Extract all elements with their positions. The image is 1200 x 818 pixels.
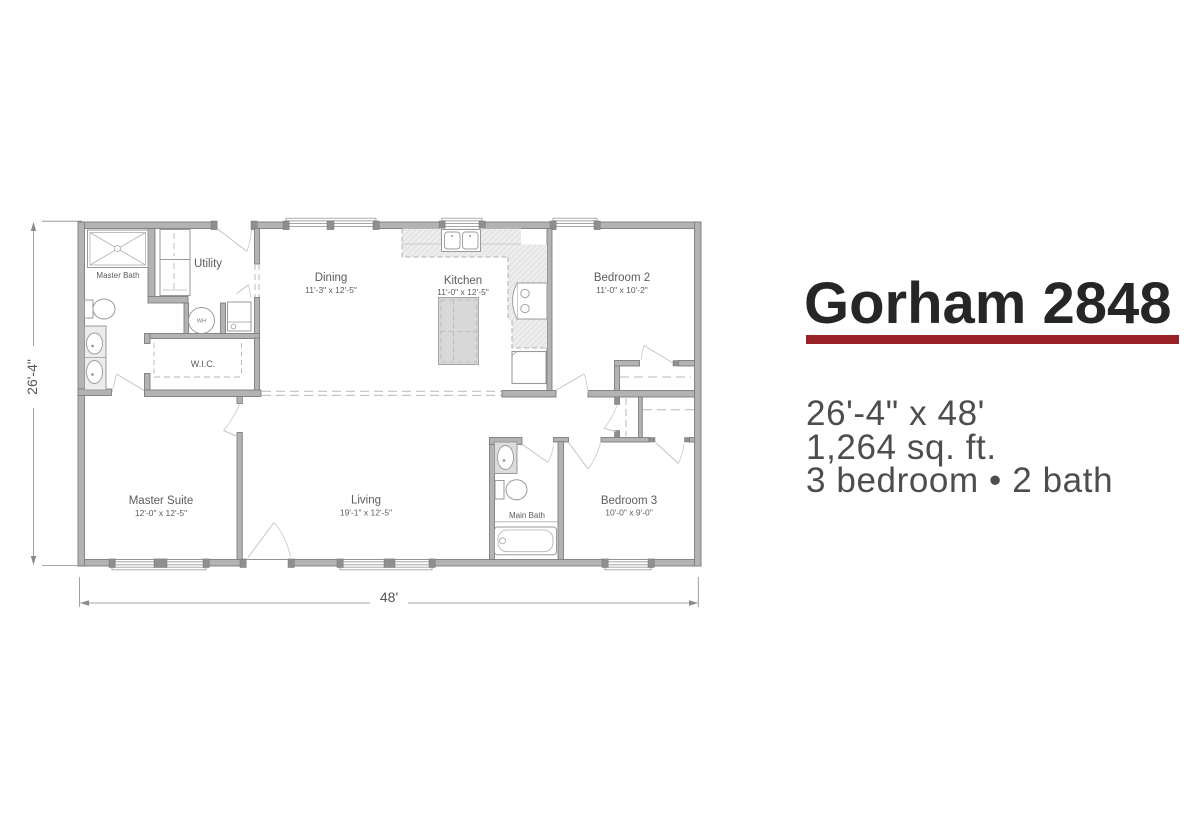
svg-text:26'-4": 26'-4" [24,359,40,395]
svg-text:Bedroom 3: Bedroom 3 [601,495,657,507]
svg-text:Living: Living [351,495,381,507]
svg-text:W.I.C.: W.I.C. [191,359,216,369]
svg-text:Master Bath: Master Bath [96,271,139,280]
svg-text:Master Suite: Master Suite [129,495,194,507]
svg-text:Dining: Dining [315,272,348,284]
svg-text:Main Bath: Main Bath [509,511,545,520]
svg-text:19'-1" x 12'-5": 19'-1" x 12'-5" [340,508,392,518]
svg-text:Bedroom 2: Bedroom 2 [594,272,650,284]
svg-text:WH: WH [197,319,206,325]
svg-text:Utility: Utility [194,258,222,270]
svg-text:11'-0" x 12'-5": 11'-0" x 12'-5" [437,287,489,297]
svg-text:10'-0" x 9'-0": 10'-0" x 9'-0" [605,508,653,518]
svg-text:12'-0" x 12'-5": 12'-0" x 12'-5" [135,508,187,518]
svg-text:48': 48' [380,589,398,605]
svg-text:Kitchen: Kitchen [444,275,482,287]
svg-text:11'-3" x 12'-5": 11'-3" x 12'-5" [305,285,357,295]
svg-text:11'-0" x 10'-2": 11'-0" x 10'-2" [596,285,648,295]
